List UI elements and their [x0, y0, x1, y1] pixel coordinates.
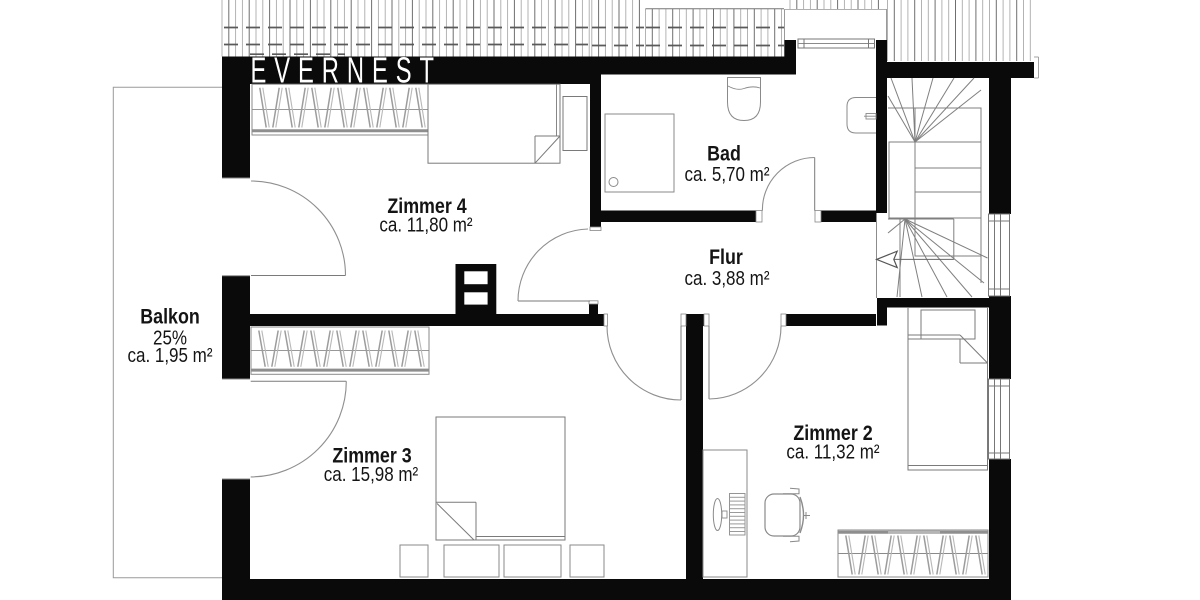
svg-text:ca. 3,88 m²: ca. 3,88 m²: [685, 267, 770, 290]
svg-text:ca. 11,32 m²: ca. 11,32 m²: [786, 440, 879, 463]
svg-text:ca. 5,70 m²: ca. 5,70 m²: [685, 163, 770, 186]
svg-text:ca. 1,95 m²: ca. 1,95 m²: [128, 344, 213, 367]
svg-text:EVERNEST: EVERNEST: [251, 51, 442, 91]
svg-text:ca. 11,80 m²: ca. 11,80 m²: [379, 213, 472, 236]
svg-text:ca. 15,98 m²: ca. 15,98 m²: [324, 463, 418, 486]
